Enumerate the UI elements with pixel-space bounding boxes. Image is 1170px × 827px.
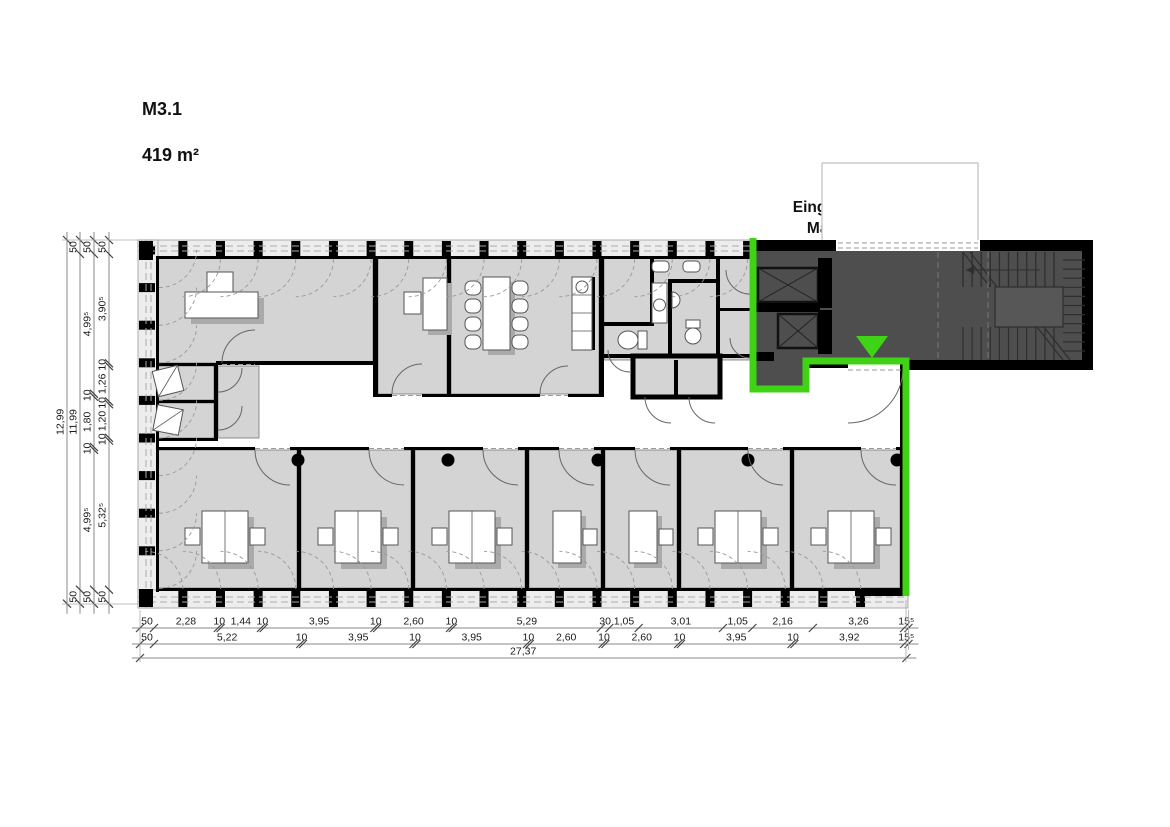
wall [156, 588, 906, 591]
elevator-icon-1 [758, 268, 818, 302]
dim-label: 3,95 [309, 616, 330, 628]
dim-label: 30 [599, 616, 611, 628]
window-mullion [139, 471, 155, 480]
window-mullion [856, 591, 865, 607]
window-mullion [139, 283, 155, 292]
window-mullion [555, 241, 564, 257]
column-icon [891, 454, 904, 467]
window-mullion [442, 241, 451, 257]
dim-label: 12,99 [55, 409, 67, 435]
dim-label: 5,32⁵ [97, 503, 109, 528]
stairwell-block [753, 163, 1093, 388]
wall [156, 400, 216, 403]
dim-label: 3,95 [461, 632, 482, 644]
entrance-vestibule-outline [822, 163, 978, 243]
chair [698, 528, 713, 545]
wall [716, 258, 720, 358]
dim-label: 3,90⁵ [97, 296, 109, 321]
chair [432, 528, 447, 545]
dim-label: 3,95 [348, 632, 369, 644]
window-mullion [139, 434, 155, 443]
facade-corner-block [139, 589, 153, 607]
window-mullion [329, 591, 338, 607]
window-mullion [442, 591, 451, 607]
dim-label: 50 [82, 591, 94, 603]
window-mullion [178, 591, 187, 607]
wall [156, 363, 218, 366]
column-icon [592, 454, 605, 467]
partition-wall [790, 450, 794, 590]
dim-label: 2,60 [403, 616, 424, 628]
wall [518, 447, 559, 450]
window-mullion [705, 591, 714, 607]
dim-label: 3,95 [726, 632, 747, 644]
dim-label: 50 [141, 632, 153, 644]
window-mullion [480, 241, 489, 257]
wall [674, 360, 678, 397]
floorplan-page: M3.1 419 m² Eingang / Treppenhaus Machtl… [0, 0, 1170, 827]
wall [156, 447, 255, 450]
meeting-table [483, 277, 510, 350]
window-mullion [668, 241, 677, 257]
single-desk [629, 511, 657, 563]
dim-label: 1,44 [231, 616, 252, 628]
dim-label: 1,20 [97, 411, 109, 432]
window-mullion [517, 591, 526, 607]
dim-label: 10 [257, 616, 269, 628]
unit-entry-door-arc [848, 368, 903, 423]
window-mullion [139, 321, 155, 330]
window-mullion [480, 591, 489, 607]
wall [720, 308, 753, 311]
stair-wall-top-left [753, 240, 836, 251]
wall [568, 394, 602, 397]
dim-label: 3,01 [671, 616, 692, 628]
chair [763, 528, 778, 545]
basin-icon [652, 261, 669, 272]
window-mullion [818, 591, 827, 607]
partition-wall [601, 450, 605, 590]
wall [156, 438, 218, 441]
window-mullion [593, 591, 602, 607]
window-mullion [404, 591, 413, 607]
wall [670, 447, 748, 450]
chair [659, 529, 673, 545]
stair-wall-top-right [980, 240, 1092, 251]
elevator-shaft-wall-2 [818, 310, 832, 354]
stairwell-floor-ext [756, 362, 806, 388]
chair [811, 528, 826, 545]
chair [583, 529, 597, 545]
dim-label: 1,80 [82, 411, 94, 432]
window-mullion [216, 591, 225, 607]
window-mullion [139, 546, 155, 555]
dim-label: 4,99⁵ [82, 507, 94, 532]
stair-landing [995, 287, 1063, 327]
toilet-icon [618, 331, 647, 349]
window-mullion [178, 241, 187, 257]
dim-label: 1,05 [614, 616, 635, 628]
dim-label: 10 [97, 397, 109, 409]
window-mullion [367, 591, 376, 607]
window-mullion [254, 591, 263, 607]
chair [383, 528, 398, 545]
window-mullion [139, 509, 155, 518]
dim-label: 50 [68, 241, 80, 253]
wall [603, 354, 635, 358]
window-mullion [593, 241, 602, 257]
dim-label: 11,99 [68, 409, 80, 435]
window-mullion [367, 241, 376, 257]
window-mullion [404, 241, 413, 257]
dim-label: 10 [446, 616, 458, 628]
door-arc [689, 397, 715, 423]
dim-label: 10 [409, 632, 421, 644]
chair [207, 272, 233, 292]
dim-label: 50 [68, 591, 80, 603]
dim-label: 10 [296, 632, 308, 644]
dim-label: 10 [97, 433, 109, 445]
window-mullion [139, 396, 155, 405]
elevator-icon-2 [778, 314, 818, 348]
partition-wall [297, 450, 301, 590]
wall [290, 447, 369, 450]
dim-label: 2,60 [556, 632, 577, 644]
dim-label: 1,26 [97, 373, 109, 394]
wall [373, 256, 378, 397]
partition-wall [677, 450, 681, 590]
dim-label: 10 [213, 616, 225, 628]
dim-label: 50 [82, 241, 94, 253]
window-mullion [705, 241, 714, 257]
dim-label: 5,22 [217, 632, 238, 644]
dim-label: 50 [141, 616, 153, 628]
booth-chair-icon [153, 405, 183, 435]
dim-label: 10 [370, 616, 382, 628]
booth-chair-icon [152, 365, 184, 397]
dim-label: 50 [97, 241, 109, 253]
dim-label: 50 [97, 591, 109, 603]
wall [599, 256, 604, 397]
dim-label: 27,37 [510, 646, 536, 658]
dim-label: 10 [97, 359, 109, 371]
window-mullion [743, 591, 752, 607]
dim-label: 3,92 [839, 632, 860, 644]
partition-wall [525, 450, 529, 590]
wall [668, 281, 672, 358]
elevator-shaft-wall-3 [756, 303, 820, 312]
window-mullion [517, 241, 526, 257]
dim-label: 10 [598, 632, 610, 644]
wall [158, 256, 755, 259]
window-mullion [781, 591, 790, 607]
dim-label: 10 [787, 632, 799, 644]
elevator-shaft-wall-4 [756, 352, 774, 361]
window-mullion [630, 241, 639, 257]
toilet-icon [685, 320, 701, 344]
dim-label: 10 [82, 442, 94, 454]
window-mullion [216, 241, 225, 257]
wall [378, 394, 392, 397]
building-entrance-gap [836, 240, 980, 251]
dim-label: 10 [674, 632, 686, 644]
single-desk [553, 511, 581, 563]
wall [404, 447, 483, 450]
window-mullion [668, 591, 677, 607]
dim-label: 10 [523, 632, 535, 644]
dim-label: 5,29 [517, 616, 538, 628]
chair [318, 528, 333, 545]
door-arc [645, 397, 671, 423]
window-mullion [291, 241, 300, 257]
kitchenette-counter [572, 277, 592, 350]
wall [783, 447, 861, 450]
wall [422, 394, 540, 397]
floor-plan-drawing: 502,28101,44103,95102,60105,29301,053,01… [0, 0, 1170, 827]
column-icon [442, 454, 455, 467]
facade-corner-block [139, 241, 153, 260]
chair [876, 528, 891, 545]
dim-label: 2,60 [632, 632, 653, 644]
chair [250, 528, 265, 545]
chair [185, 528, 200, 545]
dim-label: 4,99⁵ [82, 312, 94, 337]
window-mullion [630, 591, 639, 607]
stair-wall-bottom [906, 360, 1092, 370]
wall [603, 322, 654, 326]
dim-label: 2,16 [772, 616, 793, 628]
chair [497, 528, 512, 545]
dim-label: 2,28 [176, 616, 197, 628]
dim-label: 1,05 [727, 616, 748, 628]
window-mullion [139, 358, 155, 367]
basin-icon [683, 261, 700, 272]
booth-vestibule [218, 366, 259, 438]
dim-label: 10 [82, 389, 94, 401]
wall [594, 447, 635, 450]
column-icon [292, 454, 305, 467]
dim-label: 3,26 [848, 616, 869, 628]
window-mullion [254, 241, 263, 257]
elevator-shaft-wall-1 [818, 258, 832, 308]
window-mullion [291, 591, 300, 607]
window-mullion [555, 591, 564, 607]
partition-wall [411, 450, 415, 590]
wall [668, 279, 718, 283]
window-mullion [329, 241, 338, 257]
